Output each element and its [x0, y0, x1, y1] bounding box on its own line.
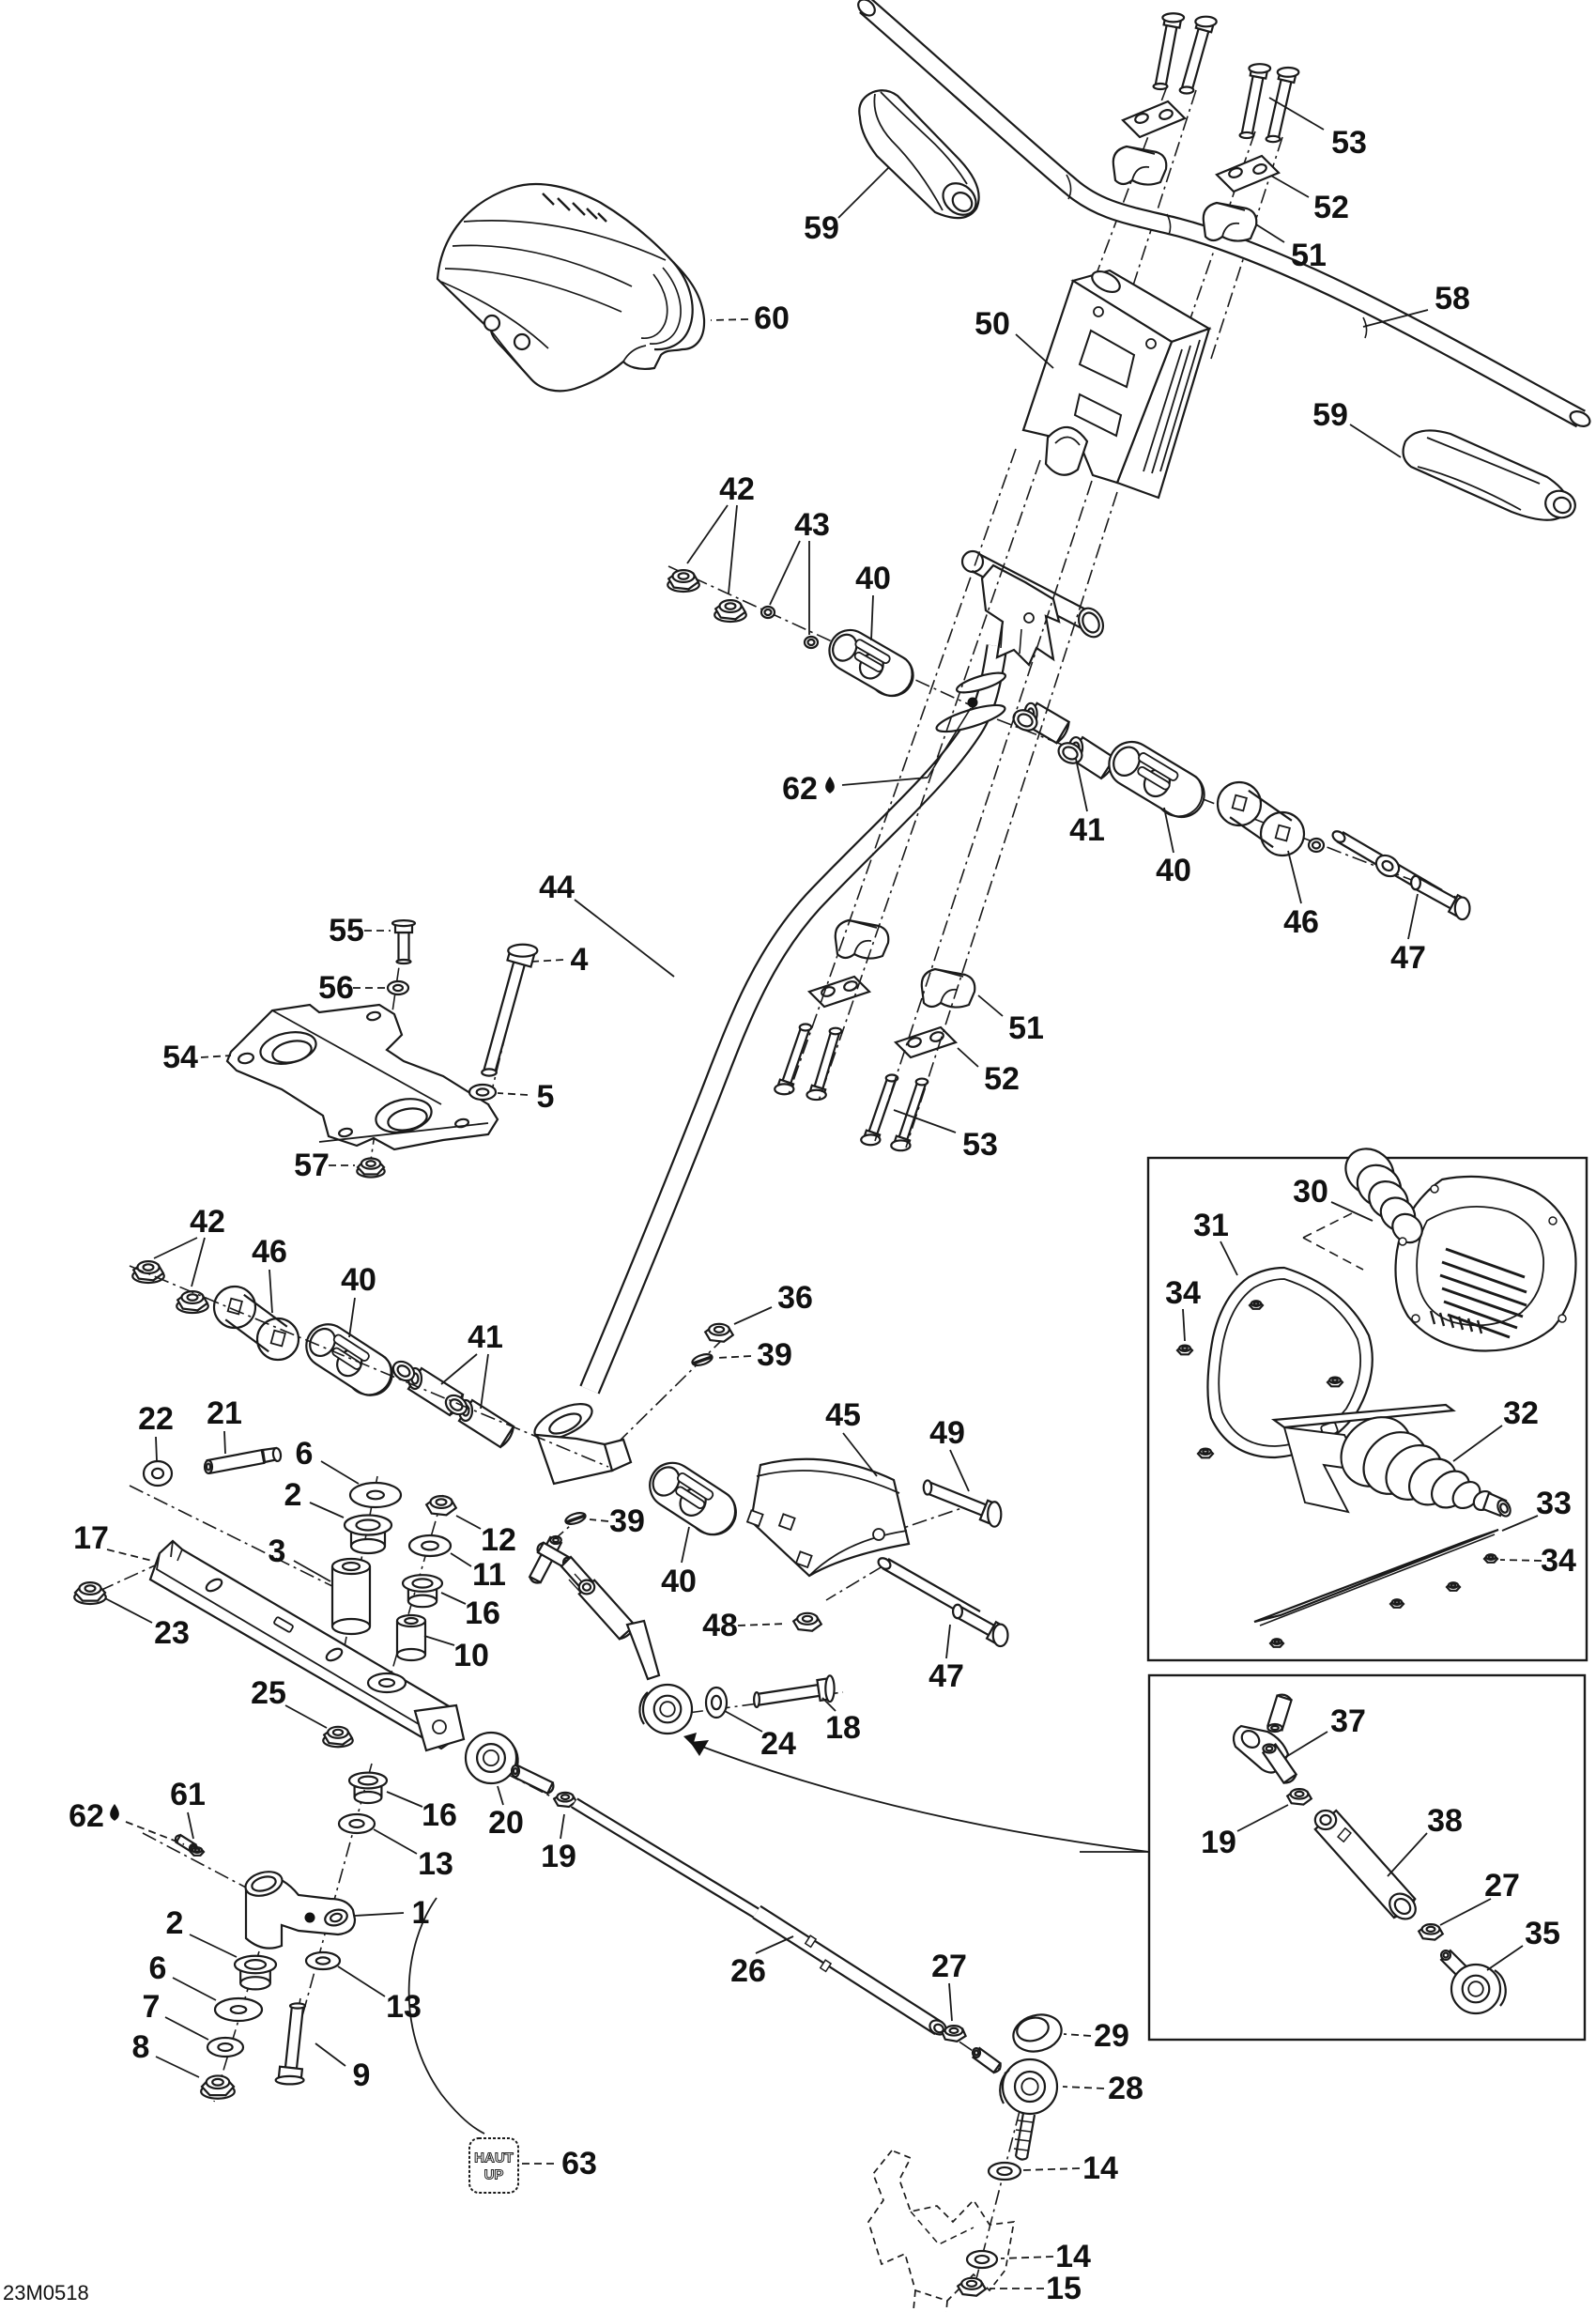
svg-text:40: 40 [661, 1564, 697, 1599]
svg-text:16: 16 [465, 1595, 500, 1631]
svg-text:53: 53 [1331, 125, 1367, 161]
svg-text:22: 22 [138, 1401, 174, 1437]
svg-text:61: 61 [170, 1777, 206, 1812]
svg-text:2: 2 [284, 1477, 302, 1513]
svg-text:58: 58 [1435, 281, 1470, 316]
svg-text:19: 19 [1201, 1825, 1236, 1860]
svg-text:27: 27 [931, 1949, 967, 1984]
svg-text:62: 62 [69, 1798, 104, 1834]
svg-text:39: 39 [609, 1503, 645, 1539]
svg-text:31: 31 [1193, 1208, 1229, 1243]
svg-text:3: 3 [269, 1534, 286, 1569]
svg-text:62: 62 [782, 771, 818, 807]
svg-text:33: 33 [1536, 1486, 1572, 1521]
svg-text:2: 2 [166, 1905, 184, 1941]
svg-text:52: 52 [1313, 190, 1349, 225]
svg-text:24: 24 [760, 1726, 796, 1762]
svg-text:7: 7 [143, 1989, 161, 2025]
svg-text:46: 46 [252, 1234, 287, 1270]
svg-text:56: 56 [318, 970, 354, 1006]
svg-text:42: 42 [719, 471, 755, 507]
svg-text:59: 59 [1312, 397, 1348, 433]
svg-text:23: 23 [154, 1615, 190, 1651]
svg-text:35: 35 [1525, 1916, 1560, 1951]
svg-text:38: 38 [1427, 1803, 1463, 1839]
svg-text:48: 48 [702, 1608, 738, 1643]
svg-text:UP: UP [484, 2167, 504, 2183]
svg-text:17: 17 [73, 1520, 109, 1556]
svg-text:45: 45 [825, 1397, 861, 1433]
svg-text:25: 25 [251, 1675, 286, 1711]
svg-text:29: 29 [1094, 2018, 1129, 2054]
svg-text:14: 14 [1082, 2150, 1118, 2186]
svg-text:50: 50 [974, 306, 1010, 342]
svg-text:40: 40 [1156, 853, 1191, 888]
svg-text:9: 9 [353, 2058, 371, 2093]
svg-text:37: 37 [1330, 1703, 1366, 1739]
svg-text:32: 32 [1503, 1395, 1539, 1431]
svg-text:12: 12 [481, 1522, 516, 1558]
svg-text:8: 8 [132, 2029, 150, 2065]
svg-text:27: 27 [1484, 1868, 1520, 1904]
svg-text:44: 44 [539, 870, 575, 905]
svg-text:11: 11 [472, 1557, 506, 1593]
svg-text:21: 21 [207, 1395, 242, 1431]
svg-text:34: 34 [1165, 1275, 1201, 1311]
svg-text:63: 63 [561, 2146, 597, 2181]
svg-text:1: 1 [412, 1895, 430, 1931]
svg-text:54: 54 [162, 1040, 198, 1075]
svg-text:34: 34 [1541, 1543, 1576, 1579]
svg-text:23M0518: 23M0518 [3, 2281, 89, 2304]
svg-text:10: 10 [453, 1638, 489, 1673]
svg-text:49: 49 [929, 1415, 965, 1451]
svg-text:14: 14 [1055, 2239, 1091, 2274]
svg-text:6: 6 [296, 1436, 314, 1472]
svg-text:55: 55 [329, 913, 364, 948]
svg-text:40: 40 [855, 561, 891, 596]
svg-text:41: 41 [468, 1319, 503, 1355]
svg-text:6: 6 [149, 1950, 167, 1986]
svg-text:51: 51 [1291, 238, 1327, 273]
svg-text:4: 4 [571, 942, 589, 978]
svg-text:19: 19 [541, 1839, 576, 1874]
svg-text:13: 13 [386, 1989, 422, 2025]
svg-text:59: 59 [804, 210, 839, 246]
svg-text:57: 57 [294, 1148, 330, 1183]
svg-text:47: 47 [1390, 940, 1426, 976]
svg-text:30: 30 [1293, 1174, 1328, 1210]
svg-text:28: 28 [1108, 2071, 1143, 2106]
svg-text:47: 47 [928, 1658, 964, 1694]
svg-text:41: 41 [1069, 812, 1105, 848]
svg-text:52: 52 [984, 1061, 1020, 1097]
svg-text:43: 43 [794, 507, 830, 543]
svg-text:16: 16 [422, 1797, 457, 1833]
svg-text:53: 53 [962, 1127, 998, 1163]
svg-text:51: 51 [1008, 1010, 1044, 1046]
svg-text:60: 60 [754, 301, 790, 336]
svg-text:26: 26 [730, 1953, 766, 1989]
svg-text:42: 42 [190, 1204, 225, 1240]
svg-text:39: 39 [757, 1337, 792, 1373]
svg-text:18: 18 [825, 1710, 861, 1746]
svg-text:15: 15 [1046, 2271, 1082, 2306]
svg-text:46: 46 [1283, 904, 1319, 940]
svg-text:36: 36 [777, 1280, 813, 1316]
svg-text:40: 40 [341, 1262, 376, 1298]
svg-text:HAUT: HAUT [474, 2150, 514, 2166]
svg-text:20: 20 [488, 1805, 524, 1841]
svg-text:5: 5 [537, 1079, 555, 1115]
svg-text:13: 13 [418, 1846, 453, 1882]
